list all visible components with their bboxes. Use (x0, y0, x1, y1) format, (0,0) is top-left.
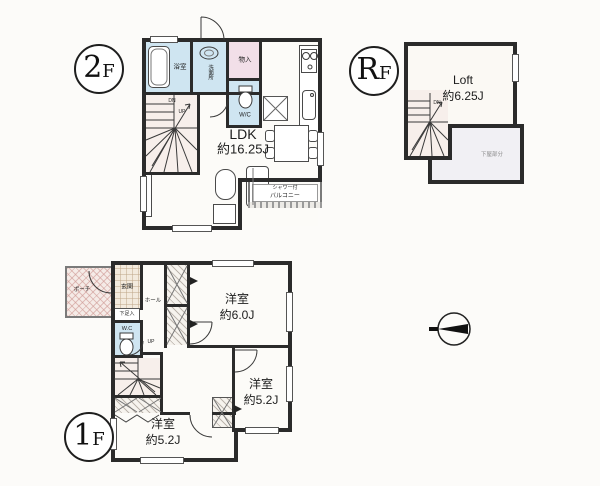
window (245, 427, 279, 434)
badge-suffix: F (92, 429, 105, 450)
storage-label: 物入 (239, 56, 252, 63)
wall (520, 124, 524, 184)
stove (301, 49, 317, 73)
badge-number: 2 (83, 50, 102, 85)
wall (428, 158, 432, 184)
shoe-storage-label: 下足入 (119, 312, 134, 318)
bedroom1-name: 洋室 (225, 293, 249, 307)
balcony-label-2: バルコニー (270, 194, 300, 201)
wall (187, 345, 292, 348)
loft-name: Loft (453, 74, 473, 88)
bathtub (148, 46, 170, 88)
wall (234, 428, 238, 462)
dining-table (274, 125, 309, 162)
badge-number: 1 (73, 418, 92, 453)
ldk-name: LDK (229, 126, 256, 142)
bedroom2-name: 洋室 (249, 378, 273, 392)
wall (448, 124, 452, 160)
wc-label: W/C (239, 113, 251, 120)
lower-roof-floor (432, 158, 520, 180)
wall (404, 42, 408, 160)
window (212, 260, 254, 267)
balcony-label-1: シャワー付 (272, 186, 297, 192)
wall (190, 38, 193, 95)
window (140, 176, 147, 212)
wall (197, 95, 200, 175)
window (286, 292, 293, 332)
window (317, 132, 324, 166)
wall (238, 178, 242, 230)
floor-plan-canvas: 浴室 洗面所 物入 W/C DN UP LDK 約16.25J シャワー付 バル… (0, 0, 600, 486)
window (150, 36, 178, 43)
wall (226, 38, 229, 128)
window (286, 366, 293, 402)
washroom-label: 洗面所 (207, 65, 213, 80)
wall (212, 412, 236, 415)
bedroom2-size: 約5.2J (244, 394, 279, 408)
closet-floor (167, 265, 187, 304)
wall (111, 320, 143, 323)
wall (226, 78, 262, 81)
floor-badge-2f: 2F (74, 44, 124, 94)
porch-wall (65, 266, 111, 268)
porch-label: ポーチ (74, 287, 91, 293)
skylight-box (263, 96, 288, 121)
closet-floor (114, 398, 160, 413)
rf-stairs-dn-label: DN (433, 101, 440, 107)
wall (238, 178, 322, 182)
wall (140, 264, 143, 310)
floor-badge-1f: 1F (64, 412, 114, 462)
porch-wall (65, 266, 67, 318)
wall (142, 92, 262, 95)
ldk-size: 約16.25J (217, 143, 269, 158)
hall-label: ホール (145, 298, 162, 304)
kitchen-sink (302, 90, 316, 120)
stairs-up-label: UP (179, 110, 186, 116)
stairs-dn-label: DN (168, 99, 175, 105)
dining-chair (265, 130, 275, 142)
wall (404, 42, 517, 46)
bedroom3-name: 洋室 (151, 418, 175, 432)
badge-number: R (356, 52, 379, 87)
closet-floor (167, 307, 187, 345)
loft-size: 約6.25J (442, 90, 483, 104)
wall (163, 412, 190, 415)
wall (448, 124, 524, 128)
floor-badge-rf: RF (349, 46, 399, 96)
wall (428, 180, 524, 184)
lower-roof-label: 下屋部分 (481, 152, 503, 158)
window (512, 54, 519, 82)
entrance-label: 玄関 (121, 285, 133, 292)
ottoman (213, 204, 236, 224)
bedroom1-size: 約6.0J (220, 309, 255, 323)
wc-label: W.C (122, 326, 132, 332)
wall (111, 355, 143, 358)
wall (111, 261, 292, 265)
window (172, 225, 212, 232)
wall (164, 304, 190, 307)
wall (232, 345, 235, 432)
wall (142, 172, 200, 175)
balcony-rail (248, 202, 322, 208)
stairs-floor (114, 358, 160, 395)
wall (111, 395, 163, 398)
stairs-up-label: UP (148, 340, 155, 346)
window (140, 457, 184, 464)
coffee-table (215, 169, 236, 200)
porch-wall (65, 316, 111, 318)
bedroom3-size: 約5.2J (146, 434, 181, 448)
bath-label: 浴室 (174, 63, 187, 70)
badge-suffix: F (102, 61, 115, 82)
stairs-floor (146, 95, 197, 172)
wall (259, 38, 262, 128)
wall (160, 352, 163, 398)
badge-suffix: F (379, 63, 392, 84)
